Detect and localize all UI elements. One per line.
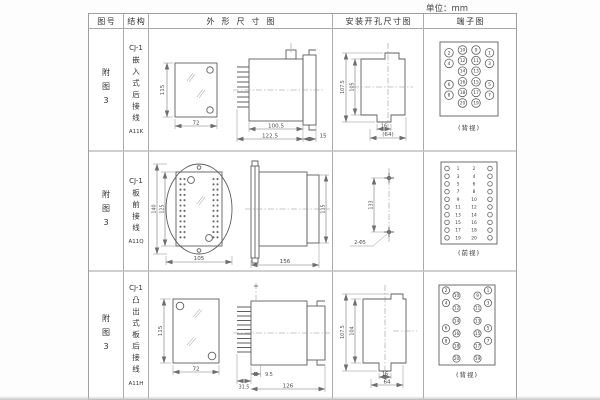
structure-code: A11K: [129, 129, 143, 135]
svg-text:7: 7: [488, 93, 491, 99]
dim-label: 133: [368, 200, 374, 209]
svg-text:11: 11: [473, 58, 479, 64]
svg-text:2: 2: [473, 166, 476, 172]
header-structure-label: 结构: [127, 16, 146, 27]
svg-text:16: 16: [454, 331, 460, 337]
header-terminal-label: 端子图: [457, 16, 486, 27]
svg-text:17: 17: [455, 228, 461, 234]
dim-label: 2-Φ5: [354, 240, 366, 246]
svg-text:10: 10: [454, 293, 460, 299]
mounting-drawing-a11k: 107.5 105 16 (64): [333, 29, 424, 150]
terminal-cell-row2: 1234567891011121314151617181920 (前视): [424, 152, 516, 272]
svg-text:13: 13: [473, 69, 479, 75]
structure-row2: CJ-1 板前接线 A11Q: [124, 152, 149, 272]
dim-label: 115: [158, 325, 164, 336]
dim-label: 105: [193, 256, 204, 262]
structure-name: 板前接线: [131, 189, 142, 235]
structure-row1: CJ-1 嵌入式后接线 A11K: [124, 29, 149, 152]
svg-text:1: 1: [457, 166, 460, 172]
spec-table: 图号 结构 外形尺寸图 安装开孔尺寸图 端子图 附图3 CJ-1 嵌入式后接线 …: [88, 13, 517, 400]
header-terminal: 端子图: [424, 14, 516, 29]
terminal-diagram-a11k: 2109141211314136161558181772019 (背视): [424, 29, 516, 150]
terminal-grid: 2109141211314136161558181772019: [442, 287, 491, 362]
dim-label: 16: [381, 371, 387, 377]
figure-no-row1: 附图3: [89, 29, 124, 152]
terminal-diagram-a11h: 2109141211314136161558181772019 (背视): [424, 273, 516, 398]
dim-label: 125: [159, 204, 165, 213]
outline-drawing-a11k: 115 72 100.5 122.5 15: [149, 29, 333, 150]
figure-no-label: 附图3: [101, 314, 112, 357]
figure-no-row3: 附图3: [89, 272, 124, 399]
dim-label: 140: [151, 204, 157, 213]
svg-text:5: 5: [488, 82, 491, 88]
dim-label: 72: [192, 120, 199, 126]
svg-text:16: 16: [471, 220, 477, 226]
svg-text:3: 3: [488, 61, 491, 67]
dim-label: 107.5: [340, 80, 346, 94]
svg-text:10: 10: [460, 48, 466, 54]
svg-text:8: 8: [473, 189, 476, 195]
structure-name: 凸出式板后接线: [131, 296, 142, 377]
dim-label: 9.5: [265, 372, 273, 378]
terminal-cell-row1: 2109141211314136161558181772019 (背视): [424, 29, 516, 152]
svg-text:15: 15: [475, 331, 481, 337]
svg-text:5: 5: [487, 326, 490, 332]
svg-text:14: 14: [460, 69, 466, 75]
svg-text:13: 13: [475, 318, 481, 324]
header-structure: 结构: [124, 14, 149, 29]
mounting-cell-row3: 107.5 104 16 64: [333, 272, 424, 399]
svg-text:9: 9: [476, 293, 479, 299]
outline-cell-row3: 115 72 9.5 31.5 126: [149, 272, 333, 399]
svg-text:14: 14: [471, 212, 477, 218]
svg-text:1: 1: [487, 288, 490, 294]
svg-text:12: 12: [454, 306, 460, 312]
svg-text:9: 9: [457, 197, 460, 203]
header-outline: 外形尺寸图: [149, 14, 333, 29]
svg-text:10: 10: [471, 197, 477, 203]
svg-text:12: 12: [460, 58, 466, 64]
svg-text:18: 18: [460, 90, 466, 96]
terminal-view-label: (背视): [456, 370, 478, 379]
outline-cell-row2: 140 125 105 115 156: [149, 152, 333, 272]
dim-label: 115: [160, 84, 166, 95]
svg-text:20: 20: [471, 235, 477, 241]
dim-label: 126: [282, 383, 293, 389]
svg-text:20: 20: [460, 101, 466, 107]
svg-text:2: 2: [445, 288, 448, 294]
terminal-grid: 2109141211314136161558181772019: [445, 46, 494, 108]
structure-series: CJ-1: [129, 44, 143, 52]
terminal-grid: 1234567891011121314151617181920: [445, 166, 493, 241]
header-figure: 图号: [89, 14, 124, 29]
mounting-drawing-a11h: 107.5 104 16 64: [333, 273, 424, 398]
svg-text:11: 11: [455, 205, 461, 211]
structure-name: 嵌入式后接线: [131, 56, 142, 125]
scan-artifact: [0, 396, 600, 400]
dim-label: 156: [279, 259, 290, 265]
svg-text:12: 12: [471, 205, 477, 211]
svg-text:1: 1: [488, 50, 491, 56]
mounting-cell-row2: 133 2-Φ5: [333, 152, 424, 272]
svg-text:7: 7: [457, 189, 460, 195]
dim-label: 100.5: [267, 123, 283, 129]
svg-text:16: 16: [460, 79, 466, 85]
figure-no-label: 附图3: [101, 190, 112, 233]
svg-text:8: 8: [445, 338, 448, 344]
figure-no-label: 附图3: [101, 68, 112, 111]
structure-code: A11H: [129, 381, 144, 387]
svg-text:17: 17: [473, 90, 479, 96]
svg-text:3: 3: [487, 301, 490, 307]
outline-cell-row1: 115 72 100.5 122.5 15: [149, 29, 333, 152]
svg-text:15: 15: [473, 79, 479, 85]
svg-text:20: 20: [454, 356, 460, 362]
dim-label: 16: [380, 123, 386, 129]
svg-text:8: 8: [448, 93, 451, 99]
header-mounting-label: 安装开孔尺寸图: [346, 16, 413, 27]
svg-text:2: 2: [448, 50, 451, 56]
svg-text:11: 11: [475, 306, 481, 312]
svg-text:4: 4: [445, 301, 448, 307]
svg-text:7: 7: [487, 338, 490, 344]
dim-label: (64): [382, 132, 393, 138]
mounting-drawing-a11q: 133 2-Φ5: [333, 152, 424, 270]
outline-drawing-a11h: 115 72 9.5 31.5 126: [149, 273, 333, 398]
header-figure-label: 图号: [97, 16, 116, 27]
svg-text:17: 17: [475, 344, 481, 350]
svg-text:19: 19: [455, 235, 461, 241]
dim-label: 104: [349, 326, 355, 335]
structure-series: CJ-1: [129, 177, 143, 185]
svg-text:18: 18: [471, 228, 477, 234]
svg-text:6: 6: [448, 82, 451, 88]
svg-text:19: 19: [473, 101, 479, 107]
figure-no-row2: 附图3: [89, 152, 124, 272]
svg-text:18: 18: [454, 344, 460, 350]
svg-text:4: 4: [448, 61, 451, 67]
dim-label: 72: [192, 366, 199, 372]
svg-text:19: 19: [475, 356, 481, 362]
structure-code: A11Q: [128, 239, 143, 245]
dim-label: 105: [349, 82, 355, 91]
structure-series: CJ-1: [129, 284, 143, 292]
svg-text:9: 9: [475, 48, 478, 54]
outline-drawing-a11q: 140 125 105 115 156: [149, 152, 333, 270]
dim-label: 122.5: [261, 133, 277, 139]
svg-text:6: 6: [445, 326, 448, 332]
svg-text:13: 13: [455, 212, 461, 218]
svg-text:3: 3: [457, 174, 460, 180]
terminal-cell-row3: 2109141211314136161558181772019 (背视): [424, 272, 516, 399]
dim-label: 115: [320, 204, 326, 213]
header-mounting: 安装开孔尺寸图: [333, 14, 424, 29]
svg-text:14: 14: [454, 318, 460, 324]
dim-label: 64: [383, 379, 391, 385]
svg-text:6: 6: [473, 182, 476, 188]
svg-text:15: 15: [455, 220, 461, 226]
structure-row3: CJ-1 凸出式板后接线 A11H: [124, 272, 149, 399]
dim-label: 31.5: [238, 385, 249, 391]
svg-text:5: 5: [457, 182, 460, 188]
header-outline-label: 外形尺寸图: [207, 16, 282, 27]
svg-text:4: 4: [473, 174, 476, 180]
dim-label: 107.5: [340, 325, 346, 339]
mounting-cell-row1: 107.5 105 16 (64): [333, 29, 424, 152]
terminal-diagram-a11q: 1234567891011121314151617181920 (前视): [424, 152, 516, 270]
terminal-view-label: (背视): [458, 123, 480, 132]
terminal-view-label: (前视): [458, 248, 480, 257]
dim-label: 15: [319, 133, 327, 139]
